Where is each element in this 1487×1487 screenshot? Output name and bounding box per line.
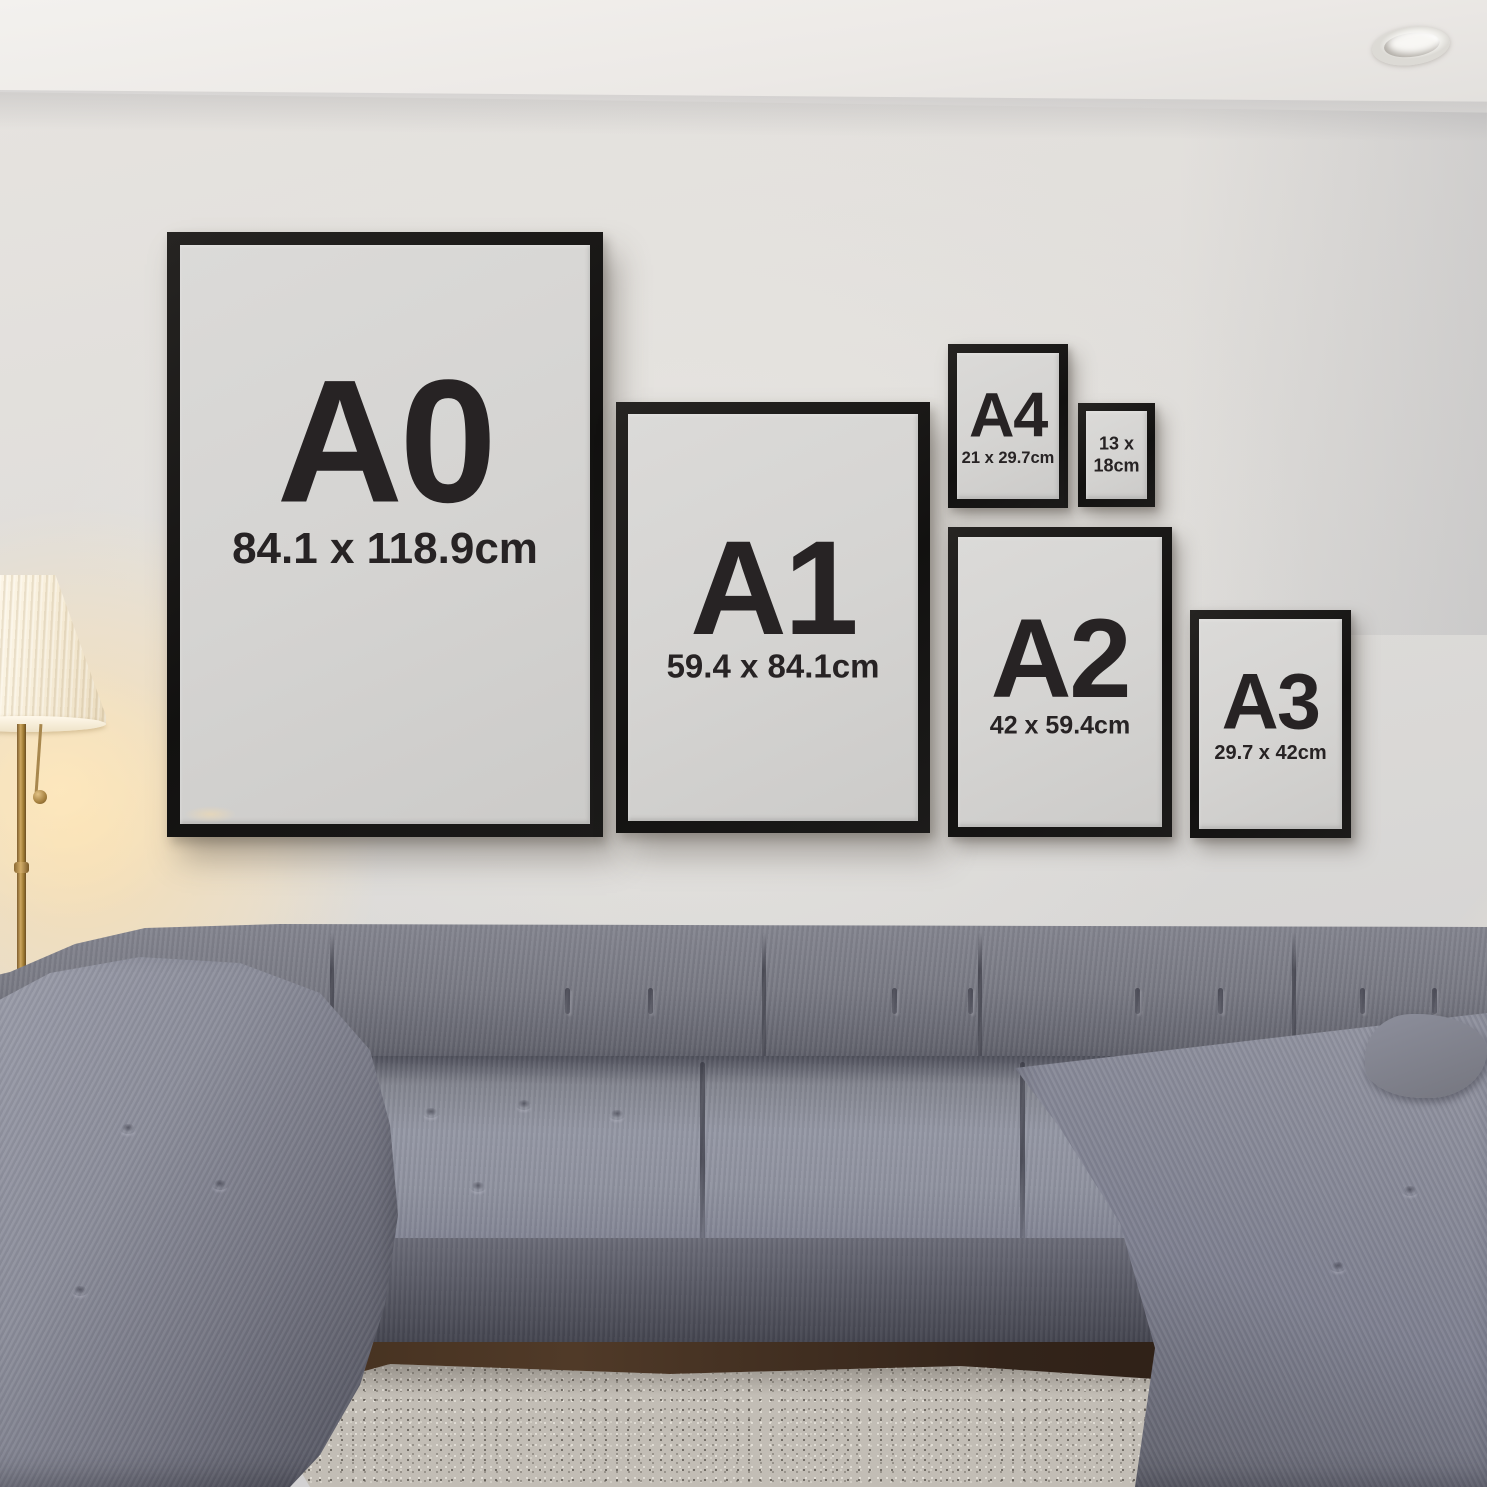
sofa-tuft — [968, 988, 973, 1014]
seat-dimple — [609, 1110, 625, 1120]
poster-size-13x18: 13 x 18cm — [1086, 433, 1147, 476]
poster-label-a2: A2 — [958, 603, 1162, 715]
chaise-dimple — [72, 1286, 88, 1296]
sofa-seat-seam — [1020, 1062, 1025, 1242]
sofa-back-seam — [978, 932, 982, 1060]
poster-label-a0: A0 — [180, 354, 590, 529]
paper-warm-glow — [180, 581, 434, 824]
poster-size-a1: 59.4 x 84.1cm — [628, 650, 918, 683]
poster-frame-13x18: 13 x 18cm — [1078, 403, 1155, 507]
poster-size-a0: 84.1 x 118.9cm — [180, 527, 590, 571]
sofa-tuft — [648, 988, 653, 1014]
lamp-pole — [17, 724, 26, 976]
shag-rug — [240, 1356, 1250, 1487]
poster-size-a2: 42 x 59.4cm — [958, 713, 1162, 738]
poster-paper-a4: A4 21 x 29.7cm — [957, 353, 1059, 499]
wall-shadow-right — [1177, 95, 1487, 635]
living-room-scene: A0 84.1 x 118.9cm A1 59.4 x 84.1cm A4 21… — [0, 0, 1487, 1487]
recessed-light-bulb — [1383, 30, 1442, 61]
seat-dimple — [470, 1182, 486, 1192]
chaise-dimple — [1330, 1262, 1346, 1272]
poster-label-a4: A4 — [957, 384, 1059, 447]
poster-paper-13x18: 13 x 18cm — [1086, 411, 1147, 499]
poster-frame-a0: A0 84.1 x 118.9cm — [167, 232, 603, 837]
poster-paper-a1: A1 59.4 x 84.1cm — [628, 414, 918, 821]
sofa-tuft — [1135, 988, 1140, 1014]
sofa-tuft — [892, 988, 897, 1014]
seat-dimple — [423, 1108, 439, 1118]
poster-frame-a4: A4 21 x 29.7cm — [948, 344, 1068, 508]
poster-size-a4: 21 x 29.7cm — [957, 450, 1059, 467]
sofa-seat-seam — [700, 1062, 705, 1242]
sofa-tuft — [1218, 988, 1223, 1014]
poster-paper-a0: A0 84.1 x 118.9cm — [180, 245, 590, 824]
poster-size-a3: 29.7 x 42cm — [1199, 743, 1342, 763]
poster-paper-a3: A3 29.7 x 42cm — [1199, 619, 1342, 829]
poster-label-a3: A3 — [1199, 661, 1342, 740]
sofa-tuft — [1360, 988, 1365, 1014]
chaise-dimple — [1402, 1186, 1418, 1196]
chaise-dimple — [120, 1124, 136, 1134]
poster-frame-a1: A1 59.4 x 84.1cm — [616, 402, 930, 833]
poster-frame-a3: A3 29.7 x 42cm — [1190, 610, 1351, 838]
poster-frame-a2: A2 42 x 59.4cm — [948, 527, 1172, 837]
poster-paper-a2: A2 42 x 59.4cm — [958, 537, 1162, 827]
sofa-tuft — [1432, 988, 1437, 1014]
lamp-pole-joint — [14, 862, 29, 873]
sofa-tuft — [565, 988, 570, 1014]
lamp-pull-chain-ball — [33, 790, 47, 804]
poster-label-a1: A1 — [628, 522, 918, 656]
seat-dimple — [516, 1100, 532, 1110]
sofa-back-seam — [762, 932, 766, 1060]
chaise-dimple — [212, 1180, 228, 1190]
